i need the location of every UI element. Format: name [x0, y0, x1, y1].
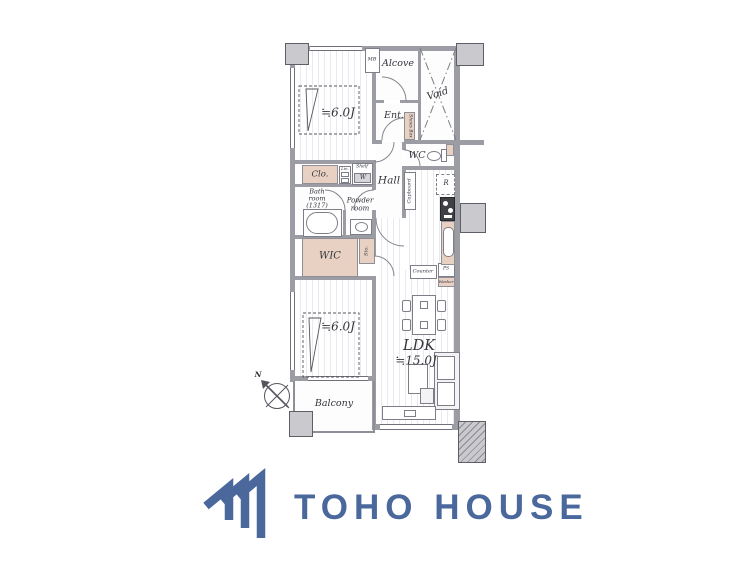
powder-room-label: Powder room	[347, 197, 374, 212]
storage-label: Sto.	[364, 246, 369, 256]
floorplan-page: ≒6.0J Alcove MB Void Ent. Shoes Box WC H…	[0, 0, 750, 563]
hall-label: Hall	[378, 175, 400, 186]
ldk-size-label: ≒15.0J	[395, 355, 437, 368]
ldk-label: LDK	[403, 339, 435, 355]
wc-label: WC	[408, 151, 425, 161]
washer-label: Washer	[438, 280, 453, 284]
refrigerator-label: R	[443, 180, 448, 188]
meter-box-label: MB	[368, 57, 377, 62]
north-label: N	[255, 371, 262, 379]
bedroom1-label: ≒6.0J	[321, 107, 355, 120]
pipe-space-label: PS	[443, 268, 449, 273]
counter-label: Counter	[413, 269, 434, 274]
balcony-label: Balcony	[315, 399, 353, 409]
floor-plan: ≒6.0J Alcove MB Void Ent. Shoes Box WC H…	[0, 0, 750, 563]
shoes-box-label: Shoes Box	[407, 114, 412, 138]
wic-label: WIC	[319, 252, 341, 263]
shelf-label: Shelf	[356, 166, 368, 171]
bathroom-label: Bath room (1317)	[306, 188, 328, 209]
cupboard-label: Cupboard	[407, 178, 412, 203]
bedroom2-label: ≒6.0J	[321, 321, 355, 334]
entrance-label: Ent.	[384, 111, 404, 121]
linen-label: Lin.	[341, 167, 349, 171]
washer-symbol-label: W	[360, 175, 366, 181]
closet-label: Clo.	[312, 170, 329, 179]
alcove-label: Alcove	[382, 59, 414, 69]
plan-overlay	[0, 0, 750, 563]
compass-icon	[261, 380, 290, 409]
